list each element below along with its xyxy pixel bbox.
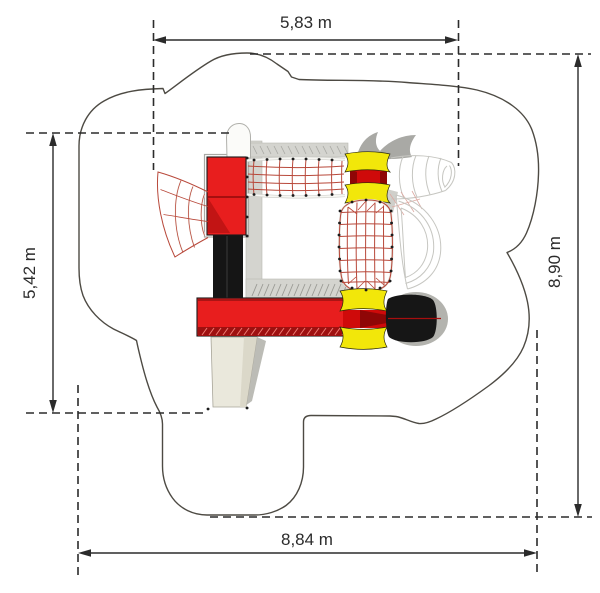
bridge-net-horizontal (248, 166, 344, 191)
tunnel-ribs (399, 156, 442, 199)
playground-structure (157, 123, 454, 409)
tunnel-end-cap (443, 163, 455, 191)
plan-drawing-canvas: 5,83 m 8,84 m 5,42 m 8,90 m (0, 0, 600, 593)
dimension-bottom-label: 8,84 m (281, 530, 333, 549)
dimension-top-arrow-right (445, 36, 458, 44)
dimension-right-label: 8,90 m (545, 236, 564, 288)
lower-walkway (197, 298, 347, 336)
dimension-left-arrow-bottom (49, 400, 57, 413)
bowtie-bottom-lobe-upper (340, 289, 387, 311)
climb-tower (207, 157, 246, 235)
dimension-right: 8,90 m (545, 54, 582, 517)
bowtie-connector-top (345, 152, 390, 203)
dimension-top-arrow-left (153, 36, 166, 44)
wire-tunnel (390, 156, 455, 216)
dimension-left: 5,42 m (20, 133, 57, 413)
playground-plan-svg: 5,83 m 8,84 m 5,42 m 8,90 m (0, 0, 600, 593)
bowtie-bottom-lobe-lower (340, 327, 387, 349)
wire-dome (396, 195, 441, 289)
bowtie-top-lobe-upper (345, 152, 390, 172)
dimension-right-arrow-top (574, 54, 582, 67)
tower-top-railing (227, 123, 251, 158)
climb-net-left (157, 172, 208, 257)
slide-pod (386, 295, 441, 343)
dimension-right-arrow-bottom (574, 504, 582, 517)
dimension-bottom: 8,84 m (78, 530, 537, 557)
dimension-top-label: 5,83 m (280, 13, 332, 32)
net-pod-oval (339, 200, 392, 292)
stair-column (213, 235, 243, 300)
dimension-bottom-arrow-right (524, 549, 537, 557)
dimension-bottom-arrow-left (78, 549, 91, 557)
dimension-left-label: 5,42 m (20, 247, 39, 299)
dome-arcs (396, 195, 441, 289)
dimension-left-arrow-top (49, 133, 57, 146)
bowtie-connector-bottom (340, 289, 387, 350)
dimension-top: 5,83 m (153, 13, 458, 44)
